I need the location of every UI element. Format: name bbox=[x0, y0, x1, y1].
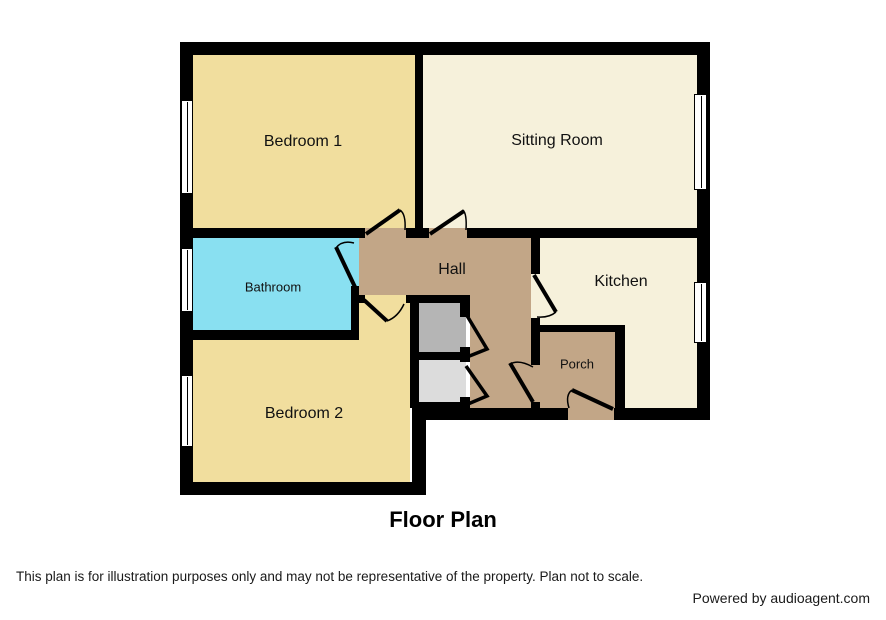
floor-plan-canvas: Bedroom 1 Sitting Room Bathroom Hall Kit… bbox=[0, 0, 886, 620]
sitting-room-label: Sitting Room bbox=[511, 132, 603, 150]
wall-segment-bottom-b bbox=[614, 408, 710, 420]
porch-label: Porch bbox=[560, 357, 594, 372]
bathroom-window-icon bbox=[181, 248, 193, 312]
wall-segment-porch-right bbox=[615, 332, 625, 408]
wall-segment-top bbox=[180, 42, 710, 55]
page-title: Floor Plan bbox=[389, 507, 497, 533]
bathroom-label: Bathroom bbox=[245, 280, 301, 295]
porch-door-gap bbox=[531, 365, 540, 402]
credit-text: Powered by audioagent.com bbox=[693, 590, 870, 606]
kitchen-window-icon bbox=[694, 282, 707, 343]
wall-segment-bed2-top-b bbox=[406, 295, 470, 303]
wall-segment-closet-stub3 bbox=[460, 397, 470, 408]
hall-corridor-floor bbox=[470, 295, 531, 408]
wall-segment-closet-stub2 bbox=[460, 347, 470, 362]
disclaimer-text: This plan is for illustration purposes o… bbox=[16, 569, 643, 584]
wall-segment-bed2-right bbox=[410, 303, 419, 408]
hall-label: Hall bbox=[438, 261, 466, 279]
wall-segment-bed2-top-a bbox=[351, 295, 365, 303]
kitchen-door-gap bbox=[531, 274, 540, 318]
bedroom1-window-icon bbox=[181, 100, 193, 194]
wall-segment-porch-left-a bbox=[531, 332, 540, 365]
bedroom2-label: Bedroom 2 bbox=[265, 405, 343, 423]
closet-dark-floor bbox=[419, 303, 466, 352]
bedroom1-label: Bedroom 1 bbox=[264, 133, 342, 151]
sitting-room-window-icon bbox=[694, 94, 707, 190]
closet-light-floor bbox=[419, 360, 466, 402]
wall-segment-bed1-sitting bbox=[415, 55, 423, 238]
front-door-gap bbox=[568, 408, 614, 420]
wall-segment-bottom-a bbox=[412, 408, 568, 420]
bathroom-door-gap bbox=[351, 238, 359, 286]
sitting-room-door-gap bbox=[429, 228, 467, 238]
wall-segment-kitchen-left-a bbox=[531, 238, 540, 274]
bedroom1-door-gap bbox=[365, 228, 406, 238]
wall-segment-porch-top bbox=[531, 325, 625, 332]
wall-segment-bathroom-bottom bbox=[193, 330, 359, 340]
wall-segment-bed2-bottom bbox=[180, 482, 426, 495]
bedroom2-floor-notch bbox=[359, 303, 410, 340]
wall-segment-mid-a bbox=[193, 228, 365, 238]
wall-segment-closet-stub1 bbox=[460, 303, 470, 317]
wall-segment-mid-c bbox=[467, 228, 697, 238]
kitchen-label: Kitchen bbox=[594, 273, 647, 291]
bedroom2-door-gap bbox=[365, 295, 406, 303]
bedroom2-window-icon bbox=[181, 375, 193, 447]
